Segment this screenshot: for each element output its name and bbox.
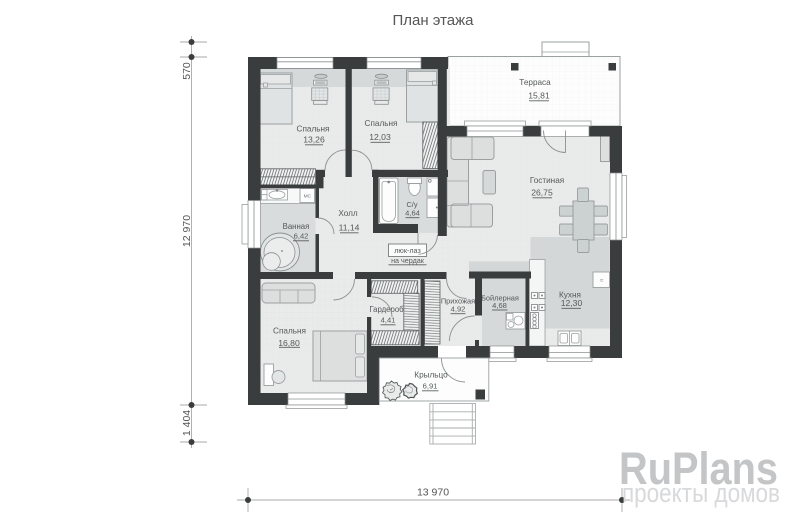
svg-text:12 970: 12 970 (181, 215, 193, 247)
svg-text:11,14: 11,14 (339, 223, 360, 233)
svg-text:15,81: 15,81 (528, 91, 550, 101)
svg-text:МС: МС (304, 194, 312, 200)
svg-text:План этажа: План этажа (392, 12, 474, 29)
svg-text:13,26: 13,26 (303, 135, 325, 145)
svg-text:4,92: 4,92 (451, 305, 466, 314)
svg-text:4,64: 4,64 (405, 209, 420, 218)
svg-text:Гардероб: Гардероб (369, 305, 404, 314)
svg-text:люк-лаз: люк-лаз (394, 246, 421, 255)
svg-text:Холл: Холл (338, 209, 358, 218)
svg-text:≈: ≈ (600, 278, 604, 285)
svg-text:Гостиная: Гостиная (530, 176, 564, 185)
svg-text:13 970: 13 970 (417, 487, 449, 499)
svg-text:26,75: 26,75 (531, 188, 553, 198)
svg-text:16,80: 16,80 (278, 338, 300, 348)
svg-text:570: 570 (181, 62, 193, 80)
svg-text:Крыльцо: Крыльцо (414, 371, 448, 380)
svg-text:Спальня: Спальня (273, 327, 306, 336)
svg-text:на чердак: на чердак (391, 256, 425, 265)
svg-text:проекты домов: проекты домов (622, 478, 780, 508)
svg-text:Терраса: Терраса (519, 78, 551, 87)
svg-text:Спальня: Спальня (365, 119, 398, 128)
svg-text:6,42: 6,42 (294, 232, 309, 241)
svg-text:4,68: 4,68 (492, 301, 507, 310)
svg-text:12,03: 12,03 (369, 132, 391, 142)
svg-text:Спальня: Спальня (297, 125, 330, 134)
svg-text:6,91: 6,91 (423, 382, 438, 391)
svg-text:Ванная: Ванная (283, 222, 310, 231)
svg-text:1 404: 1 404 (181, 410, 193, 436)
svg-text:12,30: 12,30 (561, 298, 583, 308)
svg-text:4,41: 4,41 (381, 316, 396, 325)
